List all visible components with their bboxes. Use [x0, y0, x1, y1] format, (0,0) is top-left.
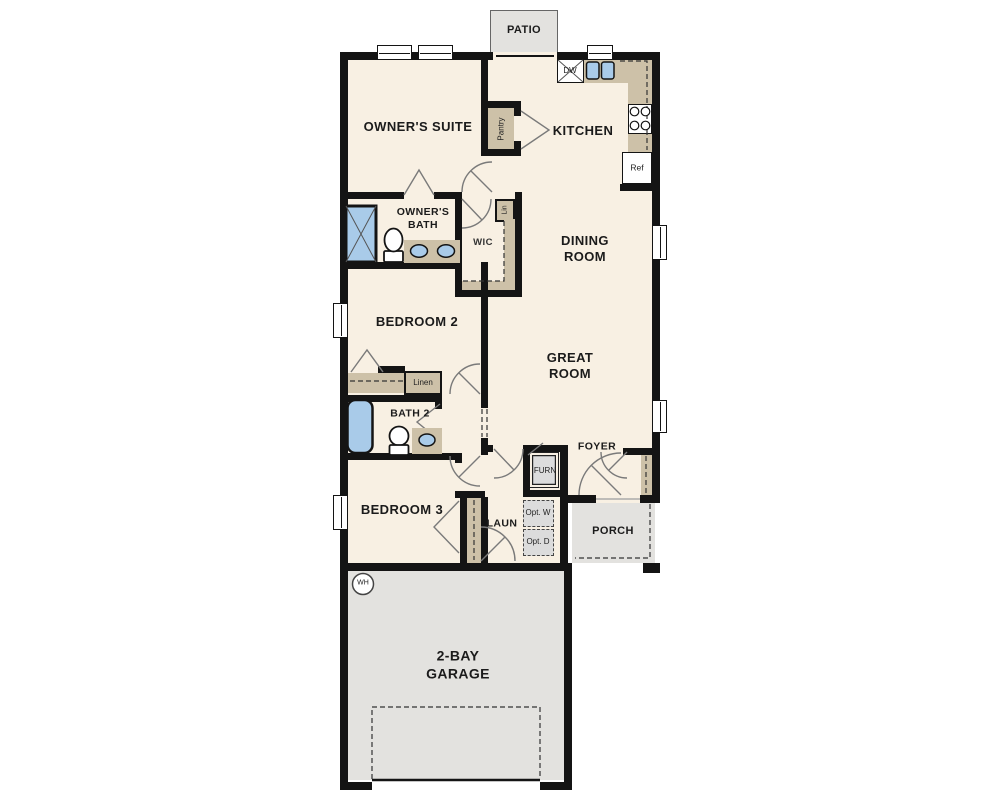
wall-pantry-top [481, 101, 521, 108]
wall-right [652, 52, 660, 503]
room-label-pantry: Pantry [497, 117, 506, 140]
wall-bath-top-b [434, 192, 462, 199]
wall-garage-bottom-right [540, 782, 572, 790]
wall-bath2-top [340, 395, 442, 402]
label-linen1: Lin [502, 205, 509, 214]
room-label-greatroom: GREAT ROOM [530, 350, 610, 383]
window-dining [652, 225, 667, 260]
wall-bed2-closet-stub [378, 366, 405, 373]
room-label-bath2: BATH 2 [370, 407, 450, 420]
wall-bath-top-a [340, 192, 404, 199]
wall-coat-closet-top [623, 448, 660, 455]
wall-front-right [640, 495, 660, 503]
wall-pantry-bottom [481, 149, 521, 156]
patio-slider-opening [493, 52, 557, 60]
wall-laundry-right [560, 445, 568, 563]
wall-greatroom-left-a [481, 262, 488, 408]
front-door-opening [596, 495, 640, 503]
wall-left-garage [340, 571, 348, 790]
wall-wic-bottom [455, 290, 522, 297]
wall-living-bottom [340, 563, 572, 571]
window-greatroom [652, 400, 667, 433]
room-label-wic: WIC [473, 237, 493, 249]
window-owners-suite-2 [418, 45, 453, 60]
pantry-jamb-bottom [514, 141, 521, 149]
room-label-kitchen: KITCHEN [523, 123, 643, 139]
window-owners-suite-1 [377, 45, 412, 60]
room-label-porch: PORCH [592, 525, 634, 539]
room-label-laundry: LAUN [487, 517, 518, 530]
bedroom2-closet-shelf [348, 373, 405, 393]
porch-corner-post [643, 563, 660, 573]
wall-wic-right [515, 192, 522, 297]
label-water-heater: WH [357, 580, 369, 589]
label-opt-dryer: Opt. D [525, 537, 551, 547]
room-label-garage: 2-BAY GARAGE [403, 648, 513, 683]
wall-below-ref [620, 184, 660, 191]
room-label-dining: DINING ROOM [543, 233, 628, 266]
label-furnace: FURN [534, 466, 556, 476]
wall-front-left [564, 495, 596, 503]
window-kitchen [587, 45, 613, 60]
room-label-owners-bath: OWNER'S BATH [381, 206, 466, 232]
room-label-bedroom2: BEDROOM 2 [337, 314, 497, 330]
wall-bed3-stub [455, 453, 462, 463]
pantry-jamb-top [514, 108, 521, 116]
kitchen-counter-top [584, 59, 652, 83]
label-linen2: Linen [413, 378, 433, 388]
room-label-patio: PATIO [507, 24, 541, 38]
room-label-bedroom3: BEDROOM 3 [322, 502, 482, 518]
wall-bed2-top [340, 262, 462, 269]
label-refrigerator: Ref [630, 163, 643, 174]
room-label-owners-suite: OWNER'S SUITE [363, 119, 473, 135]
wall-garage-right [564, 563, 572, 790]
wall-garage-bottom-left [340, 782, 372, 790]
wall-bath2-bottom [340, 453, 462, 460]
label-dishwasher: DW [563, 66, 576, 76]
label-opt-washer: Opt. W [525, 508, 551, 518]
floor-plan: PATIO OWNER'S SUITE KITCHEN Pantry DW Re… [0, 0, 1000, 800]
wall-hall-stub [481, 445, 493, 452]
room-label-foyer: FOYER [578, 440, 616, 453]
